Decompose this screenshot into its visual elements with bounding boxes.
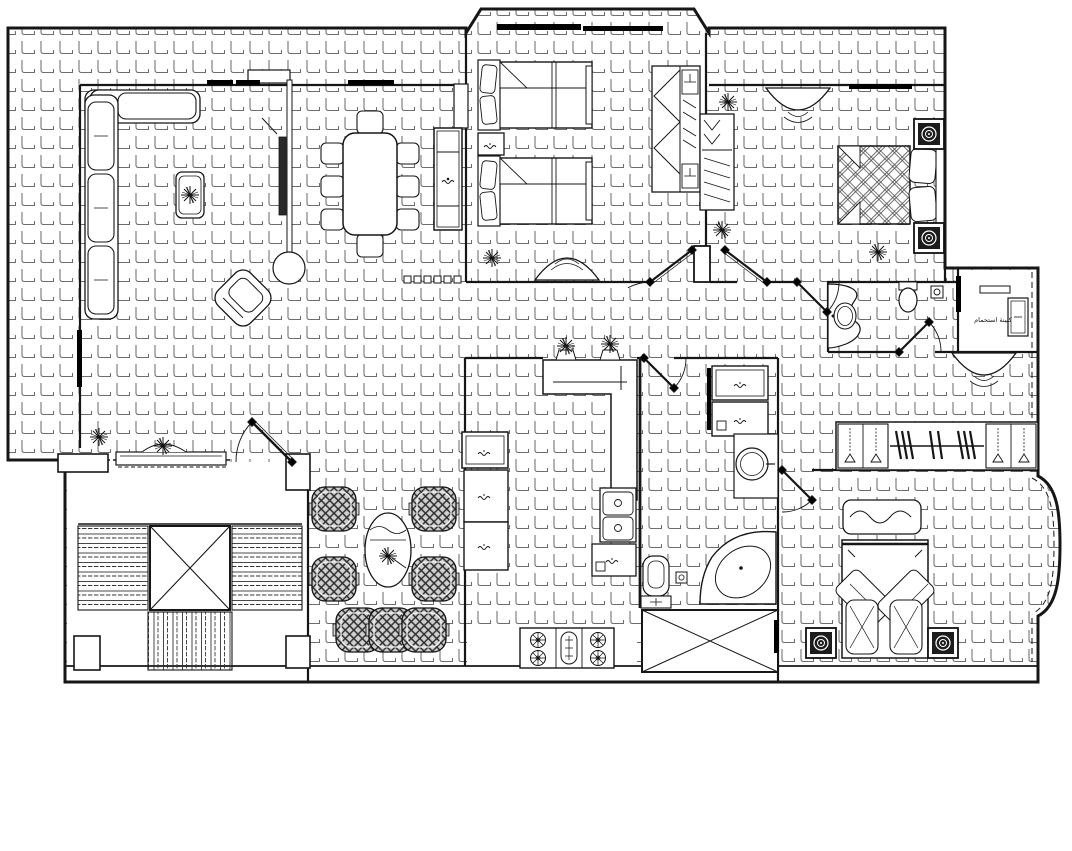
window-band (849, 84, 912, 89)
stair-flight-bottom (148, 612, 232, 670)
pillow (480, 160, 498, 189)
bedside-lamp-unit (806, 628, 836, 658)
pillow (480, 64, 498, 93)
toilet (641, 556, 671, 608)
window-band (77, 330, 82, 387)
kitchen-cabinet-b (464, 522, 508, 570)
double-sink (600, 488, 636, 542)
foot-bench (843, 500, 921, 534)
sideboard-cabinet (434, 128, 462, 230)
floor-drain (931, 286, 943, 298)
stair-flight-right (232, 526, 302, 610)
open-wardrobe (652, 66, 700, 192)
window-band (707, 368, 711, 430)
bedside-lamp-unit (914, 223, 944, 253)
pouf-armchair (409, 487, 459, 531)
kitchen-cabinet-a (464, 470, 508, 522)
round-side-table (273, 252, 305, 284)
sink-cabinet (592, 544, 636, 576)
window-band (207, 80, 233, 85)
wardrobe-cabinet-left (838, 424, 888, 468)
pouf-armchair (309, 487, 359, 531)
coffee-table-with-plant (176, 172, 204, 218)
corridor-pillar (694, 246, 710, 282)
refrigerator-cabinet (462, 432, 508, 468)
vanity-counter (828, 284, 860, 348)
pillow (480, 95, 498, 124)
window-band (497, 24, 581, 30)
toilet (899, 282, 917, 312)
pillow (909, 148, 938, 184)
window-band (236, 80, 260, 85)
nightstand (478, 133, 504, 155)
floor-plan-canvas: كبينة استحمام (0, 0, 1072, 851)
window-band (774, 620, 779, 653)
twin-bed-2 (478, 156, 592, 226)
window-band (583, 26, 663, 31)
service-shaft (642, 610, 778, 672)
twin-bed-1 (478, 60, 592, 130)
floor-plan-page: كبينة استحمام (0, 0, 1072, 851)
oval-side-table (365, 513, 411, 587)
dining-table (343, 133, 397, 235)
window-band (348, 80, 394, 85)
pouf-armchair (309, 557, 359, 601)
window-sill (454, 84, 468, 128)
wardrobe-cabinet-right (986, 424, 1036, 468)
window-band (956, 276, 961, 312)
vanity-basin (734, 434, 778, 498)
gas-stove (520, 628, 614, 668)
master-wardrobe (700, 114, 734, 210)
elevator-shaft-stair (150, 526, 230, 610)
stair-flight-left (78, 526, 148, 610)
shelf (980, 286, 1010, 293)
tv-screen (279, 137, 286, 215)
wardrobe-rail-row (836, 422, 1038, 470)
floor-drain (676, 572, 687, 583)
pouf-armchair (399, 608, 449, 652)
bedside-lamp-unit (914, 119, 944, 149)
pillow (480, 191, 498, 220)
pouf-armchair (409, 557, 459, 601)
bedside-lamp-unit (928, 628, 958, 658)
shower-cabin-label: كبينة استحمام (974, 316, 1013, 324)
pillow (909, 186, 938, 222)
double-bed-2 (834, 540, 937, 658)
